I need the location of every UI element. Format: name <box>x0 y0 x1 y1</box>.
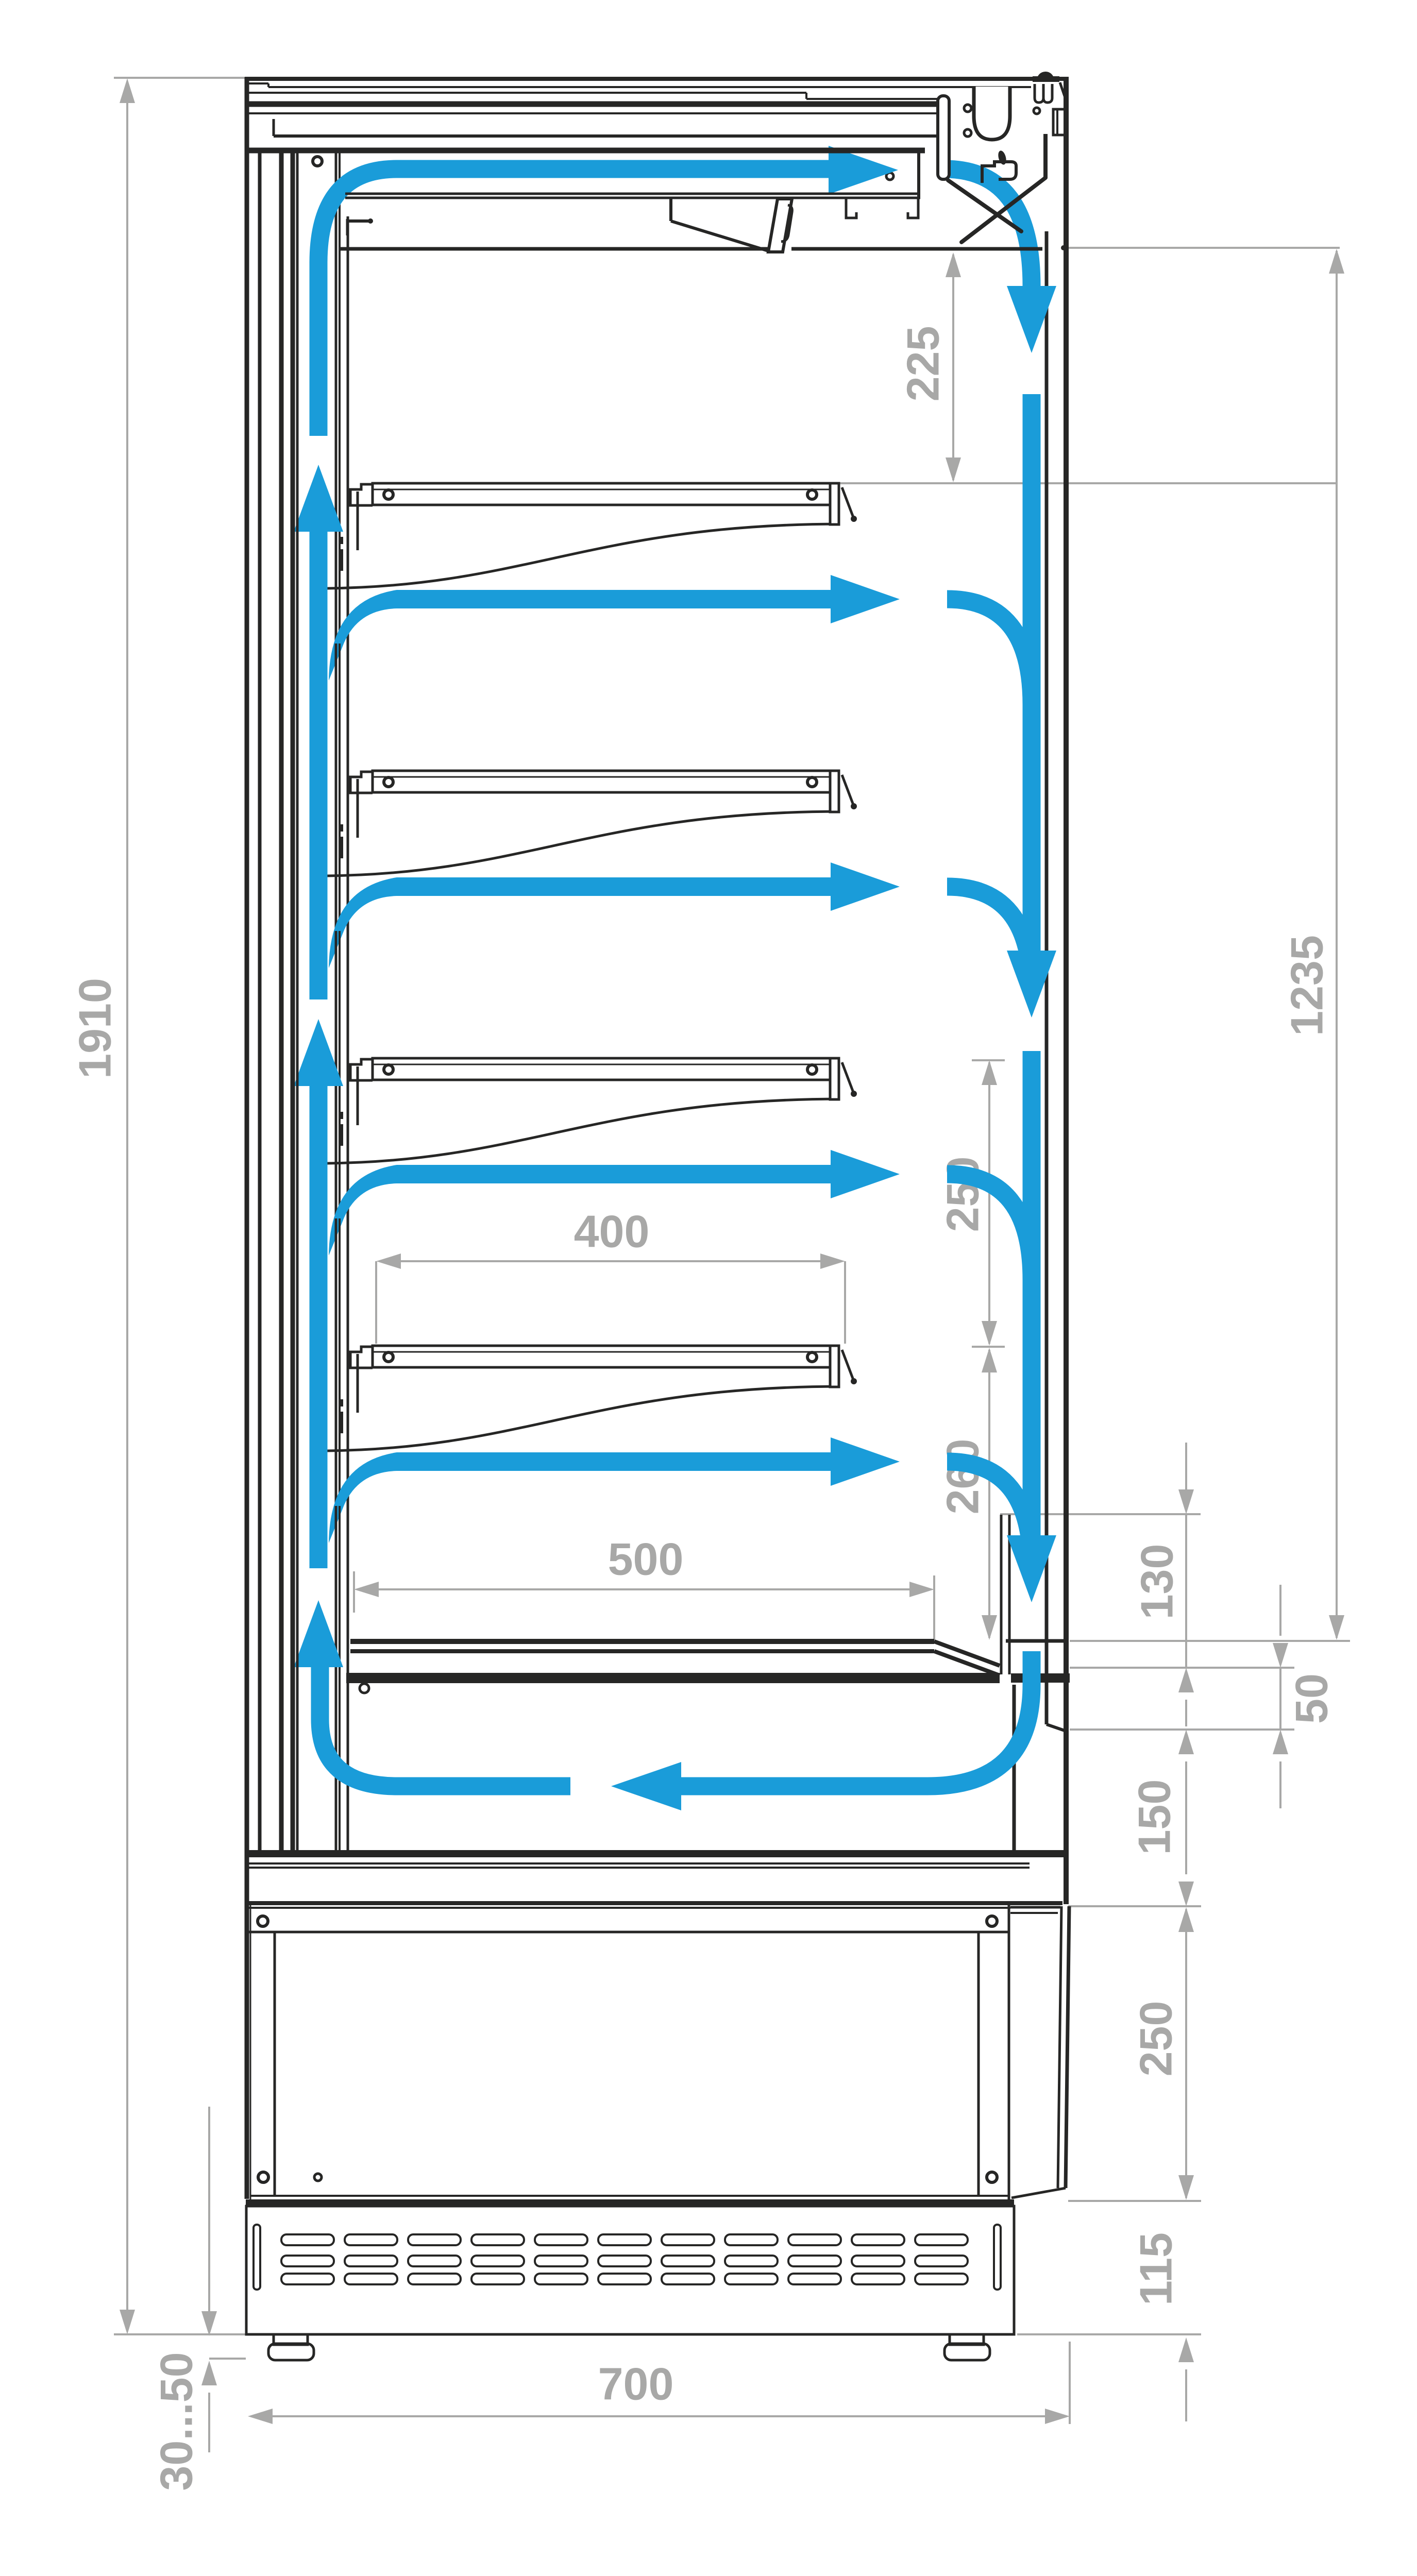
svg-text:150: 150 <box>1129 1780 1180 1855</box>
svg-text:500: 500 <box>608 1534 684 1585</box>
svg-text:115: 115 <box>1131 2232 1182 2306</box>
svg-text:50: 50 <box>1286 1673 1337 1724</box>
svg-text:250: 250 <box>1131 2001 1182 2077</box>
svg-text:130: 130 <box>1132 1544 1183 1620</box>
svg-text:1235: 1235 <box>1281 935 1332 1036</box>
svg-text:700: 700 <box>598 2359 674 2410</box>
svg-text:400: 400 <box>574 1206 650 1257</box>
svg-text:225: 225 <box>898 326 949 402</box>
svg-text:1910: 1910 <box>70 978 121 1079</box>
svg-text:260: 260 <box>937 1439 988 1515</box>
svg-text:30...50: 30...50 <box>151 2352 202 2490</box>
